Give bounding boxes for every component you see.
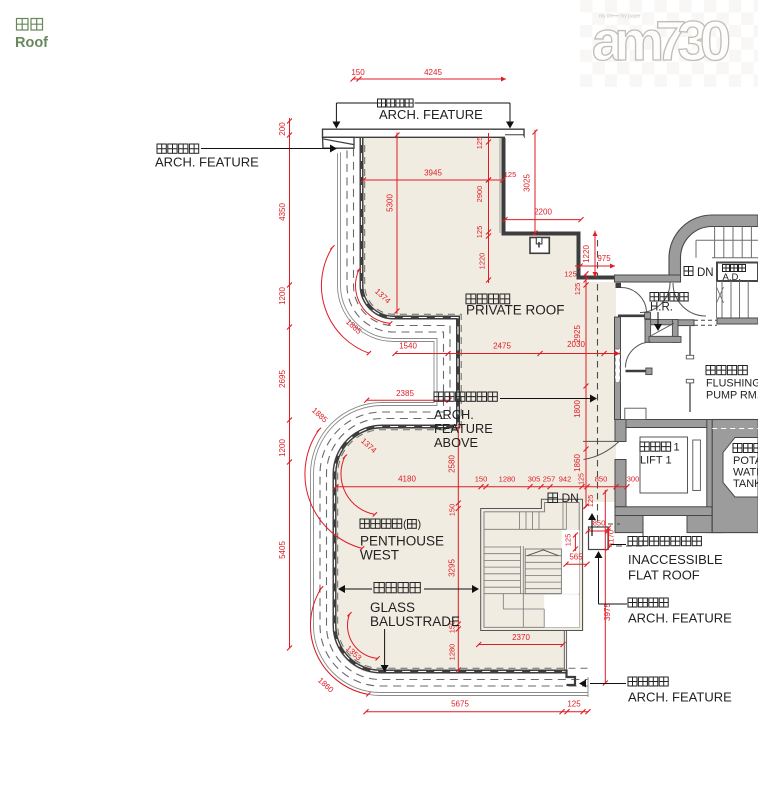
svg-text:ARCH. FEATURE: ARCH. FEATURE bbox=[628, 690, 732, 705]
svg-text:2385: 2385 bbox=[396, 389, 414, 398]
svg-text:150: 150 bbox=[448, 504, 457, 517]
svg-text:305: 305 bbox=[528, 475, 541, 484]
svg-text:1200: 1200 bbox=[278, 287, 287, 305]
svg-text:FEATURE: FEATURE bbox=[434, 421, 493, 436]
svg-text:1280: 1280 bbox=[499, 475, 516, 484]
svg-text:PUMP RM.: PUMP RM. bbox=[706, 390, 758, 402]
svg-text:FLAT ROOF: FLAT ROOF bbox=[628, 568, 700, 583]
svg-text:LIFT 1: LIFT 1 bbox=[640, 455, 672, 467]
svg-text:DN: DN bbox=[562, 491, 579, 505]
svg-text:ABOVE: ABOVE bbox=[434, 435, 478, 450]
svg-text:2200: 2200 bbox=[534, 208, 552, 217]
svg-text:ARCH. FEATURE: ARCH. FEATURE bbox=[155, 155, 259, 170]
svg-text:1200: 1200 bbox=[278, 439, 287, 457]
svg-text:125: 125 bbox=[564, 534, 573, 547]
svg-text:4350: 4350 bbox=[278, 203, 287, 221]
svg-text:1800: 1800 bbox=[573, 400, 582, 418]
svg-text:1170: 1170 bbox=[607, 530, 616, 546]
svg-text:125: 125 bbox=[567, 700, 581, 709]
svg-text:1: 1 bbox=[674, 442, 680, 454]
svg-text:5300: 5300 bbox=[386, 194, 395, 212]
svg-text:H.R.: H.R. bbox=[650, 302, 673, 314]
svg-text:975: 975 bbox=[597, 254, 611, 263]
svg-text:1860: 1860 bbox=[573, 454, 582, 472]
svg-text:150: 150 bbox=[475, 475, 488, 484]
svg-text:DN: DN bbox=[697, 267, 714, 279]
svg-text:1220: 1220 bbox=[582, 245, 591, 263]
svg-text:2900: 2900 bbox=[475, 186, 484, 203]
svg-text:PRIVATE ROOF: PRIVATE ROOF bbox=[466, 303, 565, 318]
svg-text:125: 125 bbox=[504, 170, 517, 179]
svg-text:PENTHOUSE: PENTHOUSE bbox=[360, 534, 444, 549]
svg-text:200: 200 bbox=[278, 122, 287, 136]
svg-text:ARCH. FEATURE: ARCH. FEATURE bbox=[379, 107, 483, 122]
svg-text:150: 150 bbox=[351, 68, 365, 77]
svg-text:125: 125 bbox=[579, 473, 586, 485]
svg-text:850: 850 bbox=[595, 475, 608, 484]
svg-text:125: 125 bbox=[475, 226, 484, 239]
svg-text:2580: 2580 bbox=[448, 455, 457, 473]
svg-text:POTABLE: POTABLE bbox=[733, 455, 758, 467]
svg-text:1540: 1540 bbox=[399, 342, 417, 351]
svg-text:am730: am730 bbox=[592, 9, 729, 72]
svg-text:3295: 3295 bbox=[448, 559, 457, 577]
svg-text:300: 300 bbox=[627, 475, 640, 484]
svg-text:3945: 3945 bbox=[424, 169, 442, 178]
svg-text:4180: 4180 bbox=[398, 475, 416, 484]
svg-text:2925: 2925 bbox=[573, 325, 582, 343]
svg-text:2695: 2695 bbox=[278, 370, 287, 388]
svg-text:125: 125 bbox=[475, 137, 484, 150]
svg-text:WATER: WATER bbox=[733, 467, 758, 479]
svg-text:257: 257 bbox=[543, 475, 556, 484]
svg-text:5675: 5675 bbox=[451, 700, 469, 709]
svg-text:5405: 5405 bbox=[278, 541, 287, 559]
svg-text:125: 125 bbox=[573, 283, 582, 296]
svg-text:942: 942 bbox=[559, 475, 572, 484]
svg-text:2475: 2475 bbox=[493, 342, 511, 351]
svg-text:ARCH. FEATURE: ARCH. FEATURE bbox=[628, 611, 732, 626]
svg-text:2370: 2370 bbox=[512, 633, 530, 642]
svg-text:3975: 3975 bbox=[603, 603, 612, 621]
svg-text:ARCH.: ARCH. bbox=[434, 407, 474, 422]
svg-text:(: ( bbox=[403, 519, 407, 531]
svg-text:1220: 1220 bbox=[478, 253, 487, 270]
svg-text:TANK 1: TANK 1 bbox=[733, 478, 758, 490]
svg-text:FLUSHING: FLUSHING bbox=[706, 378, 758, 390]
svg-text:4245: 4245 bbox=[424, 68, 442, 77]
svg-text:WEST: WEST bbox=[360, 548, 399, 563]
svg-text:Roof: Roof bbox=[15, 35, 48, 51]
svg-text:INACCESSIBLE: INACCESSIBLE bbox=[628, 552, 723, 567]
svg-text:3025: 3025 bbox=[523, 174, 532, 192]
svg-text:GLASS: GLASS bbox=[370, 600, 415, 615]
svg-text:BALUSTRADE: BALUSTRADE bbox=[370, 614, 460, 629]
svg-text:A.D.: A.D. bbox=[723, 272, 741, 283]
svg-text:1280: 1280 bbox=[448, 644, 457, 661]
svg-text:125: 125 bbox=[564, 270, 577, 279]
svg-text:): ) bbox=[418, 519, 422, 531]
svg-text:565: 565 bbox=[569, 553, 583, 562]
